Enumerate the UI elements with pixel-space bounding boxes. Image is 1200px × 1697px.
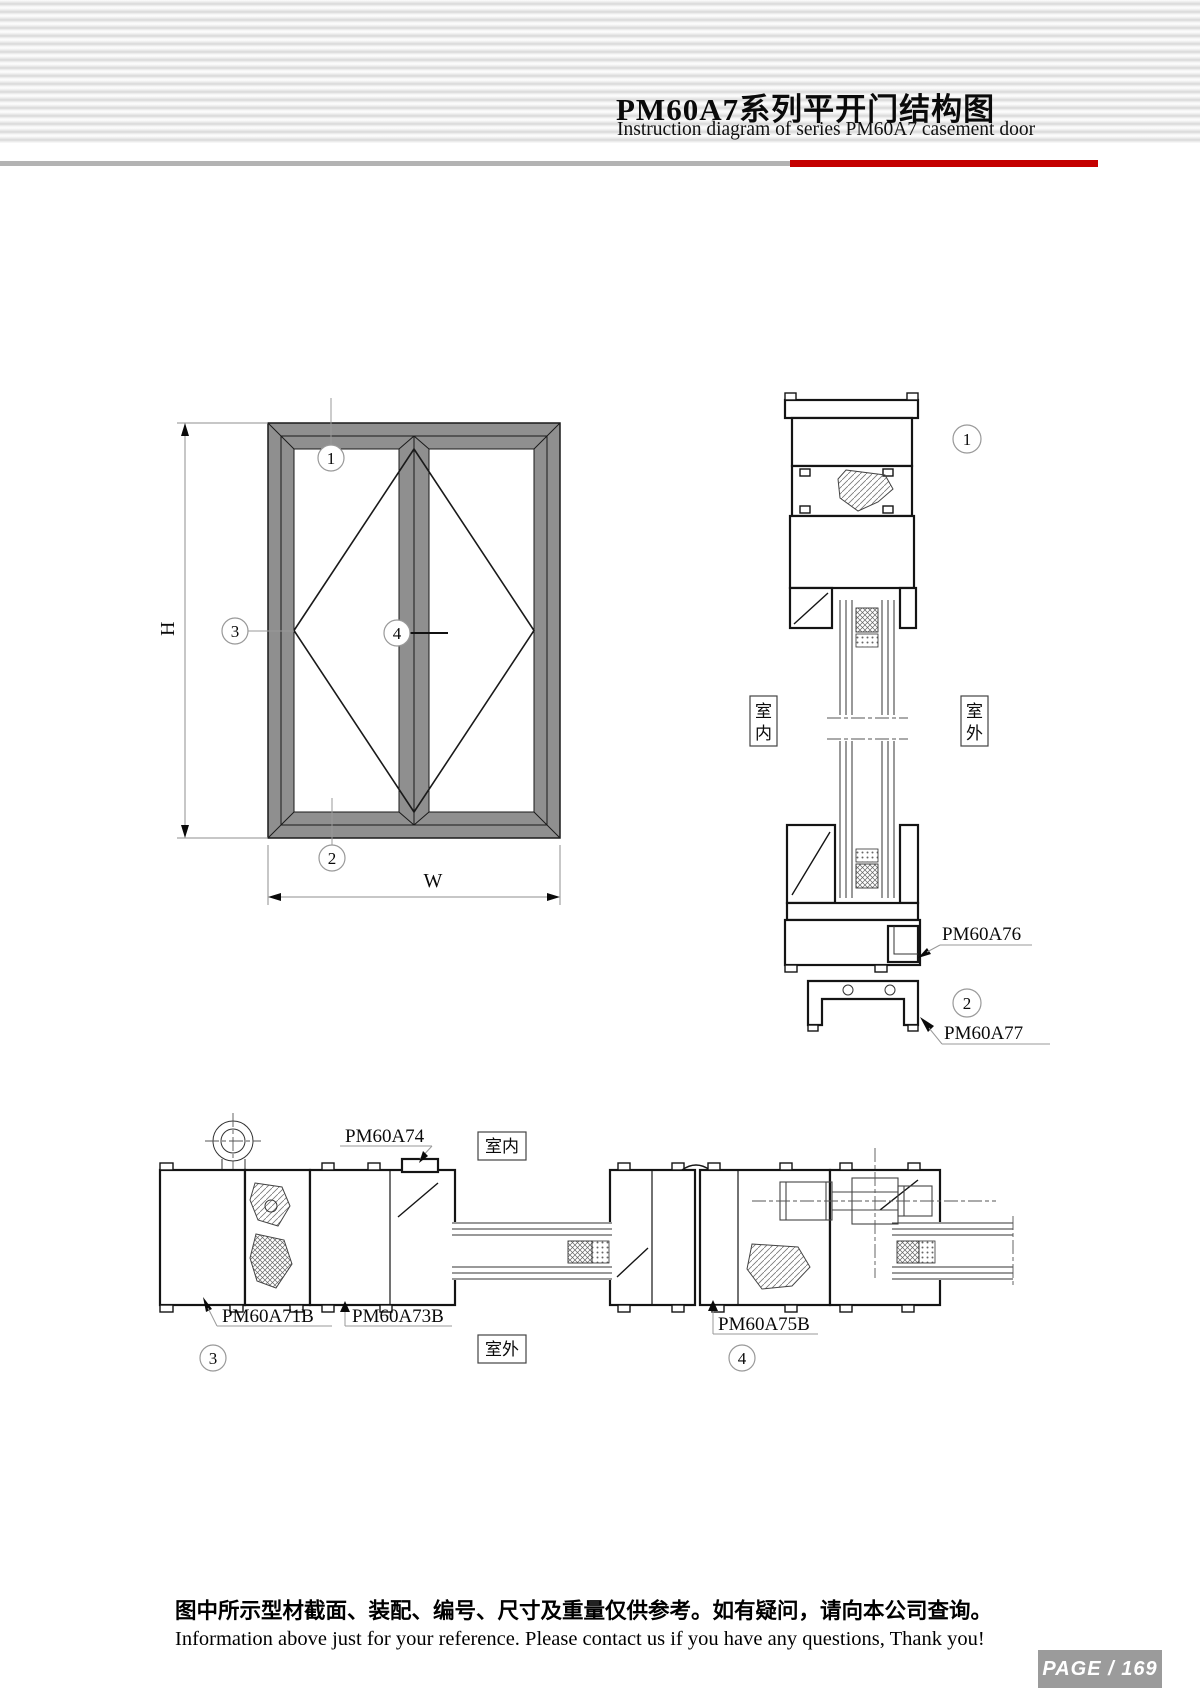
- callout-3: 3: [231, 622, 240, 641]
- indoor-label-top: 室: [755, 702, 772, 722]
- callout-2: 2: [963, 994, 972, 1013]
- part-label-pm60a74: PM60A74: [345, 1126, 425, 1147]
- vertical-section-drawing: 室 内 室 外 1 2 PM60A76 PM60A77: [680, 360, 1070, 1080]
- divider-red: [790, 160, 1098, 167]
- part-label-pm60a71b: PM60A71B: [222, 1306, 314, 1327]
- glazing-unit: [827, 600, 908, 898]
- outdoor-label-bottom: 外: [966, 724, 983, 744]
- door-elevation-drawing: H W 1 2 3 4: [150, 360, 620, 920]
- page-subtitle: Instruction diagram of series PM60A7 cas…: [617, 119, 1035, 141]
- width-dim-label: W: [424, 870, 443, 892]
- divider-gray: [0, 161, 790, 166]
- door-frame: [268, 423, 560, 838]
- footer-note-en: Information above just for your referenc…: [175, 1628, 985, 1651]
- footer-note-cn: 图中所示型材截面、装配、编号、尺寸及重量仅供参考。如有疑问，请向本公司查询。: [175, 1594, 992, 1625]
- height-dim-label: H: [157, 622, 179, 636]
- pm60a71b-frame-profile: [160, 1170, 245, 1305]
- outdoor-label: 室外: [485, 1340, 519, 1360]
- part-label-pm60a75b: PM60A75B: [718, 1314, 810, 1335]
- pm60a77-threshold: [808, 981, 918, 1025]
- catalog-page: PM60A7系列平开门结构图 Instruction diagram of se…: [0, 0, 1200, 1697]
- horizontal-section-drawing: 室内 室外 PM60A74 PM60A71B PM60A73B PM60A75B: [140, 1020, 1100, 1400]
- left-frame-and-leaf: [160, 1159, 455, 1312]
- callout-1: 1: [327, 449, 336, 468]
- callout-4: 4: [393, 624, 402, 643]
- callout-2: 2: [328, 849, 337, 868]
- width-dimension: W: [268, 845, 560, 905]
- glass-break-lines: [827, 718, 908, 739]
- page-number-badge: PAGE / 169: [1038, 1650, 1162, 1688]
- indoor-label-bottom: 内: [755, 724, 772, 744]
- callout-1: 1: [963, 430, 972, 449]
- callout-4: 4: [738, 1349, 747, 1368]
- part-label-pm60a73b: PM60A73B: [352, 1306, 444, 1327]
- callout-3: 3: [209, 1349, 218, 1368]
- pm60a76-profile: [888, 926, 918, 962]
- indoor-outdoor-labels: 室 内 室 外: [750, 696, 988, 746]
- hinge-knuckle: [205, 1113, 261, 1172]
- indoor-label: 室内: [485, 1137, 519, 1157]
- outdoor-label-top: 室: [966, 702, 983, 722]
- part-label-pm60a76: PM60A76: [942, 924, 1021, 945]
- meeting-stiles: [610, 1163, 940, 1312]
- pm60a73b-leaf-profile: [310, 1170, 455, 1305]
- top-frame-profile: [785, 393, 918, 628]
- indoor-outdoor-labels: 室内 室外: [478, 1132, 526, 1363]
